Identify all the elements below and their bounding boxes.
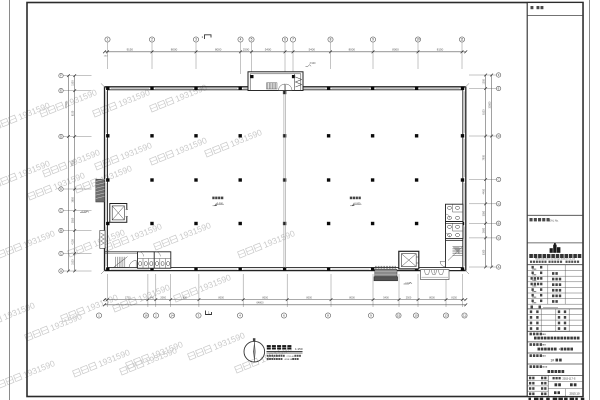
svg-text:5: 5 <box>251 38 253 42</box>
svg-text:8100: 8100 <box>482 109 485 115</box>
svg-text:8150: 8150 <box>437 48 444 52</box>
svg-text:2600: 2600 <box>482 227 485 233</box>
svg-text:8000: 8000 <box>306 296 312 299</box>
svg-text:7: 7 <box>292 38 294 42</box>
svg-text:C: C <box>60 252 62 256</box>
svg-text:33500: 33500 <box>65 101 68 108</box>
svg-text:±0.000: ±0.000 <box>353 202 361 205</box>
svg-text:15: 15 <box>397 314 401 318</box>
svg-text:2015-117-S: 2015-117-S <box>563 378 576 381</box>
svg-text:4100: 4100 <box>72 239 75 245</box>
svg-text:8100: 8100 <box>72 110 75 116</box>
svg-text:9150: 9150 <box>127 48 134 52</box>
svg-text:5400: 5400 <box>309 48 316 52</box>
svg-text:8: 8 <box>330 38 332 42</box>
svg-text:890: 890 <box>183 296 188 299</box>
svg-text:SEAL No.: SEAL No. <box>548 219 560 223</box>
svg-text:4450: 4450 <box>482 188 485 194</box>
svg-text:B: B <box>60 229 62 233</box>
svg-text:2: 2 <box>151 38 153 42</box>
svg-text:C: C <box>498 178 500 182</box>
svg-text:14: 14 <box>170 314 174 318</box>
svg-text:8000: 8000 <box>349 296 355 299</box>
svg-text:D: D <box>60 135 62 139</box>
svg-text:11: 11 <box>460 38 464 42</box>
svg-text:7900: 7900 <box>482 154 485 160</box>
svg-text:E: E <box>498 87 500 91</box>
svg-text:11: 11 <box>463 314 466 318</box>
svg-text:HaiMen Architectural Design In: HaiMen Architectural Design Institute Co… <box>535 257 575 260</box>
svg-text:C: C <box>498 236 500 240</box>
svg-text:5400: 5400 <box>265 48 272 52</box>
svg-text:6: 6 <box>284 38 286 42</box>
svg-text:±0.000: ±0.000 <box>216 202 224 205</box>
svg-text:3550: 3550 <box>72 217 75 223</box>
svg-text:2060: 2060 <box>160 296 166 299</box>
svg-text:1750: 1750 <box>125 296 131 299</box>
svg-text:A: A <box>60 269 62 273</box>
svg-text:33500: 33500 <box>488 101 491 108</box>
svg-text:13: 13 <box>444 314 448 318</box>
svg-text:8000: 8000 <box>218 296 224 299</box>
svg-text:5300: 5300 <box>482 249 485 255</box>
svg-text:2500: 2500 <box>243 48 250 52</box>
svg-text:C: C <box>60 187 62 191</box>
svg-text:1350: 1350 <box>482 78 485 84</box>
svg-text:8000: 8000 <box>262 296 268 299</box>
svg-text:9: 9 <box>372 38 374 42</box>
svg-text:4298.38: 4298.38 <box>284 359 293 361</box>
svg-text:8000: 8000 <box>392 48 399 52</box>
svg-text:2500: 2500 <box>406 296 412 299</box>
svg-text:E: E <box>60 89 62 93</box>
svg-text:9300: 9300 <box>72 159 75 165</box>
svg-text:16: 16 <box>144 314 148 318</box>
svg-text:1500: 1500 <box>72 80 75 86</box>
svg-text:F: F <box>498 73 500 77</box>
svg-text:3100: 3100 <box>72 259 75 265</box>
svg-text:2015.10: 2015.10 <box>569 392 580 396</box>
svg-text:1:150: 1:150 <box>295 347 303 351</box>
svg-text:940: 940 <box>150 296 155 299</box>
svg-text:B: B <box>498 221 500 225</box>
svg-text:3: 3 <box>195 38 197 42</box>
svg-text:-0.300: -0.300 <box>81 211 88 213</box>
svg-text:64800: 64800 <box>257 302 265 305</box>
svg-text:D: D <box>498 134 500 138</box>
svg-text:A: A <box>498 265 500 269</box>
svg-text:8150: 8150 <box>451 296 457 299</box>
svg-text:1#: 1# <box>551 358 555 362</box>
svg-text:C: C <box>60 209 62 213</box>
svg-text:5400: 5400 <box>383 296 389 299</box>
svg-text:1: 1 <box>107 38 109 42</box>
svg-text:8000: 8000 <box>429 296 435 299</box>
svg-text:-0.020: -0.020 <box>405 282 412 284</box>
svg-text:10: 10 <box>414 314 418 318</box>
svg-text:8000: 8000 <box>215 48 222 52</box>
svg-text:3850: 3850 <box>72 196 75 202</box>
svg-text:10: 10 <box>416 38 420 42</box>
svg-text:3.900: 3.900 <box>310 62 317 65</box>
svg-text:8000: 8000 <box>349 48 356 52</box>
svg-text:F: F <box>60 74 62 78</box>
svg-text:4: 4 <box>240 38 242 42</box>
svg-text:C: C <box>498 202 500 206</box>
svg-text:2715.62: 2715.62 <box>287 356 296 358</box>
svg-text:8000: 8000 <box>171 48 178 52</box>
svg-text:3550: 3550 <box>482 210 485 216</box>
